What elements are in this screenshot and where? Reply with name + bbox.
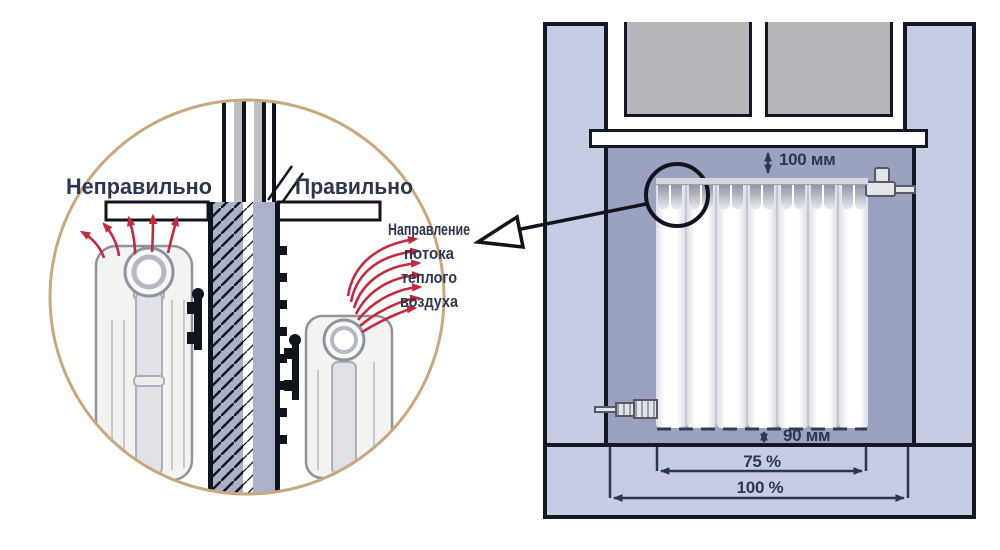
- radiator-left-incorrect: [96, 246, 204, 480]
- zoom-inset: Неправильно Правильно Направление потока…: [0, 0, 540, 550]
- windowsill-left: [106, 202, 208, 220]
- correct-label: Правильно: [295, 174, 413, 199]
- radiator-installation-diagram: 100 мм 90 мм 75 % 100 %: [0, 0, 1000, 550]
- callout-circle: [646, 164, 708, 226]
- incorrect-label: Неправильно: [66, 174, 212, 199]
- airflow-caption-line: потока: [404, 245, 455, 263]
- wall-cross-section: [208, 202, 287, 498]
- airflow-caption-line: теплого: [401, 269, 457, 287]
- airflow-caption-line: Направление: [388, 221, 470, 239]
- gap-top-label: 100 мм: [779, 150, 835, 170]
- windowsill-right: [278, 202, 380, 220]
- radiator-width-label: 75 %: [712, 452, 812, 472]
- window-profile-section: [222, 88, 276, 203]
- airflow-caption-line: воздуха: [400, 293, 459, 311]
- niche-width-label: 100 %: [710, 478, 810, 498]
- gap-bottom-label: 90 мм: [783, 426, 830, 446]
